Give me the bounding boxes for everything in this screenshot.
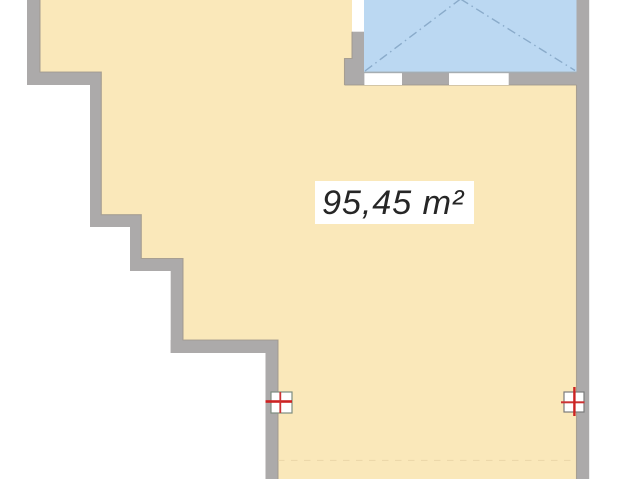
svg-text:95,45 m²: 95,45 m² (322, 184, 465, 222)
